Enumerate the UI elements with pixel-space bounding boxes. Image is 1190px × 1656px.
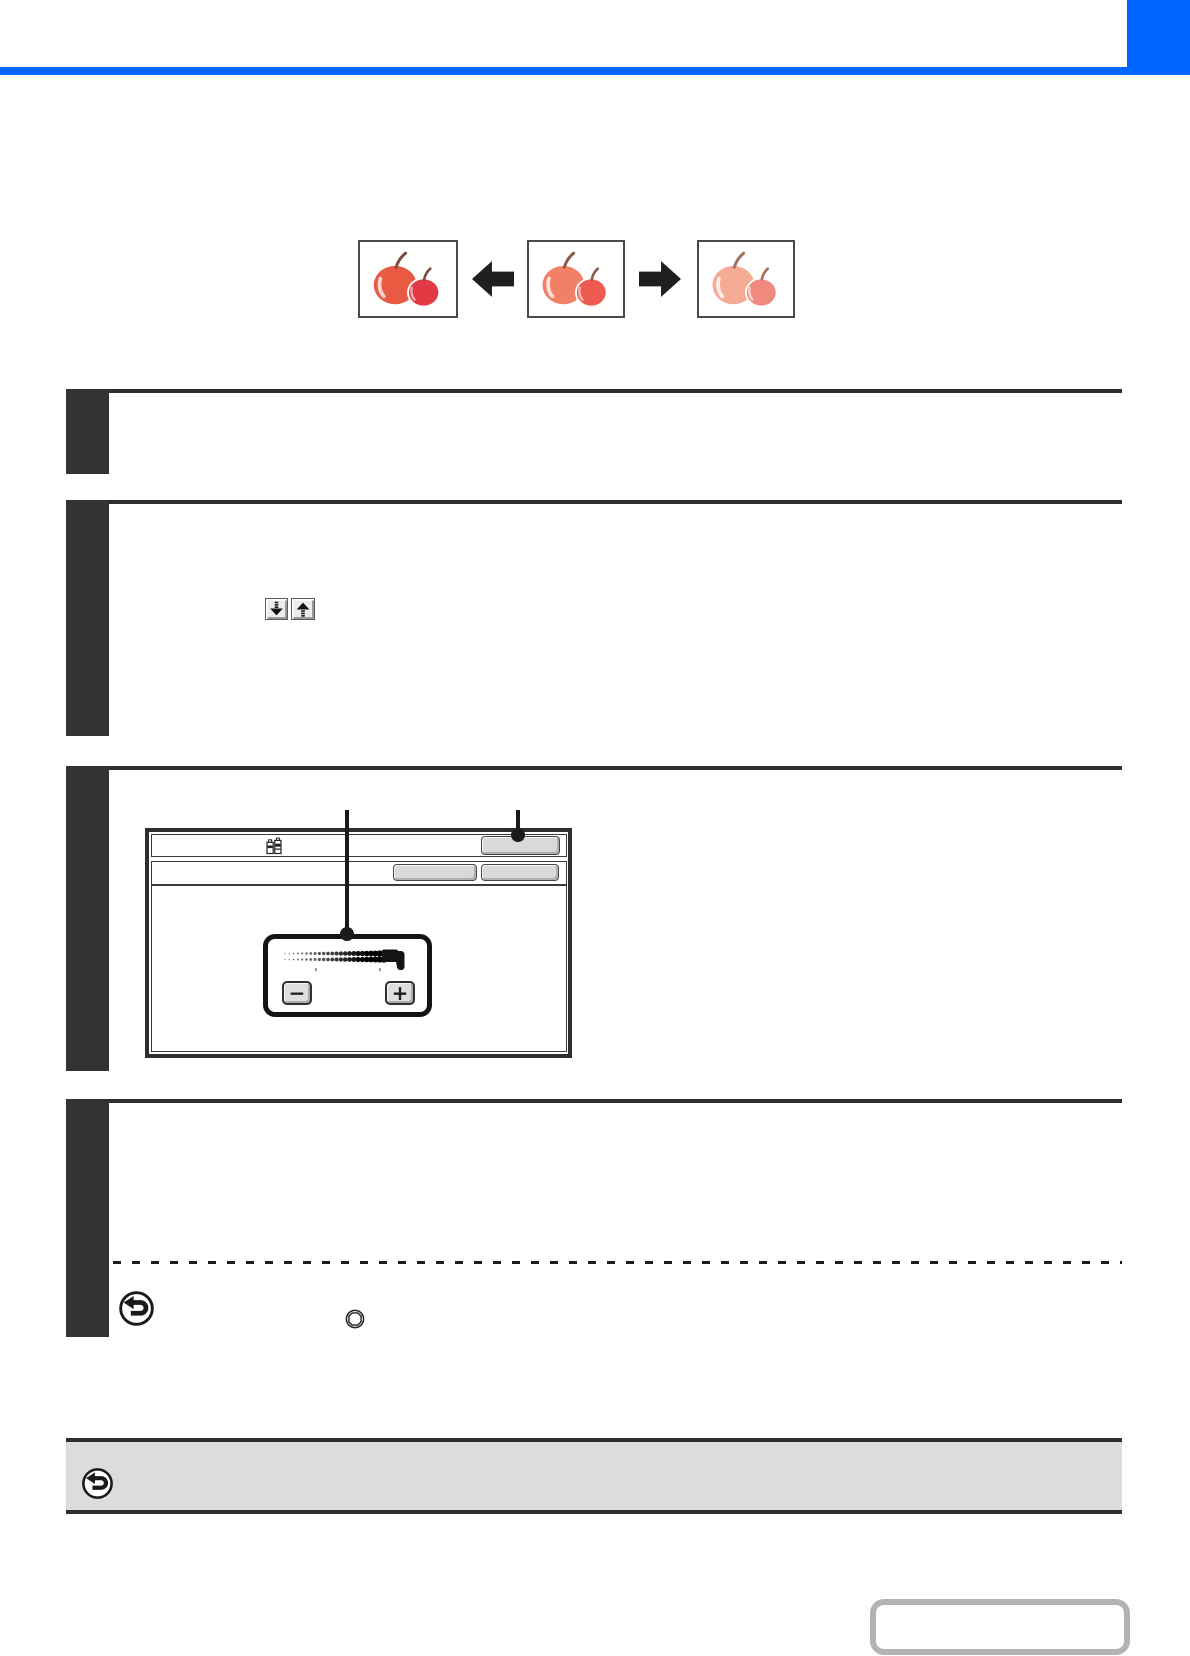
step-2-number-box [66, 500, 109, 736]
chapter-corner-tab [1127, 0, 1190, 75]
apple-image-original [527, 240, 625, 318]
apples-graphic [529, 242, 622, 315]
manual-page: − + [0, 0, 1190, 1656]
intensity-minus-key[interactable]: − [282, 981, 312, 1005]
stop-key-icon [345, 1309, 365, 1329]
arrow-right-icon [639, 259, 681, 299]
apple-image-lighter [697, 240, 795, 318]
step-4-rule [66, 1099, 1122, 1103]
scroll-down-key[interactable] [265, 598, 288, 620]
callout-dot-header-key [511, 828, 525, 842]
apples-graphic [699, 242, 792, 315]
dashed-divider [113, 1261, 1122, 1264]
intensity-plus-key[interactable]: + [385, 981, 415, 1005]
halftone-gradient-scale [282, 949, 413, 972]
step-1-rule [66, 389, 1122, 393]
arrow-left-icon [472, 259, 514, 299]
header-rule [0, 67, 1190, 75]
scroll-up-key-icon [292, 599, 314, 619]
page-link-box[interactable] [870, 1599, 1130, 1655]
step-1-number-box [66, 389, 109, 474]
apples-graphic [360, 242, 455, 315]
callout-dot-intensity-panel [340, 927, 354, 941]
toner-indicator-icon [266, 837, 282, 855]
note-bar [66, 1438, 1122, 1514]
screen-key-left[interactable] [393, 864, 477, 881]
step-4-number-box [66, 1099, 109, 1337]
step-3-rule [66, 766, 1122, 770]
screen-divider [152, 884, 566, 886]
minus-glyph: − [289, 983, 306, 1003]
scroll-down-key-icon [266, 599, 287, 619]
back-arrow-icon [118, 1290, 155, 1327]
scroll-up-key[interactable] [291, 598, 315, 620]
apple-image-stronger [358, 240, 458, 318]
step-3-number-box [66, 766, 109, 1071]
step-2-rule [66, 500, 1122, 504]
plus-glyph: + [392, 983, 409, 1003]
note-back-arrow-icon [81, 1467, 114, 1500]
callout-line-intensity-panel [345, 810, 349, 936]
screen-key-right[interactable] [481, 864, 559, 881]
